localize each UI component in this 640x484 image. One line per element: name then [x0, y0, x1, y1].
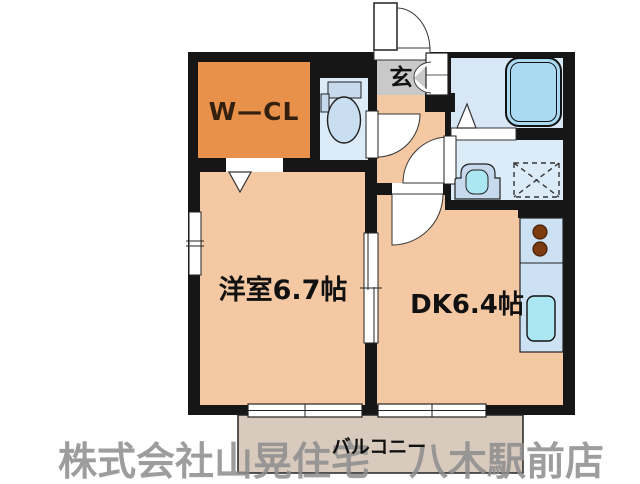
washbasin-icon [455, 164, 500, 199]
floor-plan-canvas: W—CL 玄 洋室6.7帖 DK6.4帖 株式会社山晃住宅 八木駅前店 バルコニ… [0, 0, 640, 480]
balcony-label: バルコニー [332, 436, 427, 458]
toilet-handle [321, 94, 329, 112]
wcl-door-opening [226, 158, 283, 172]
floor-plan: W—CL 玄 洋室6.7帖 DK6.4帖 株式会社山晃住宅 八木駅前店 バルコニ… [0, 0, 640, 484]
western-room-label: 洋室6.7帖 [219, 274, 348, 306]
genkan-label: 玄 [390, 64, 413, 91]
kitchen-counter [520, 218, 563, 352]
stove-burner-icon [533, 242, 547, 256]
dk-door-opening [392, 183, 443, 195]
left-window-body [189, 212, 201, 275]
bath-sill [451, 128, 516, 140]
kitchen-sink-icon [527, 296, 555, 341]
window-symbol-bottom-right [378, 404, 486, 417]
window-symbol-bottom-left [248, 404, 362, 417]
kitchen-top-wall [518, 205, 563, 218]
window-symbol-left [186, 212, 204, 275]
bathtub-outer [506, 58, 561, 126]
bathtub-icon [506, 58, 561, 126]
stove-burner-icon [533, 225, 547, 239]
toilet-tank [328, 82, 361, 98]
entrance-door-arc [397, 8, 430, 51]
wcl-label: W—CL [209, 97, 300, 126]
washroom-door-leaf [444, 136, 456, 184]
washbasin-bowl [466, 170, 488, 194]
toilet-door-leaf [366, 111, 378, 158]
wall-below-cabinet [425, 93, 455, 112]
entrance-door-leaf [374, 3, 397, 50]
dk-label: DK6.4帖 [410, 290, 524, 320]
shoe-cabinet [426, 53, 448, 95]
toilet-bowl [328, 97, 361, 143]
